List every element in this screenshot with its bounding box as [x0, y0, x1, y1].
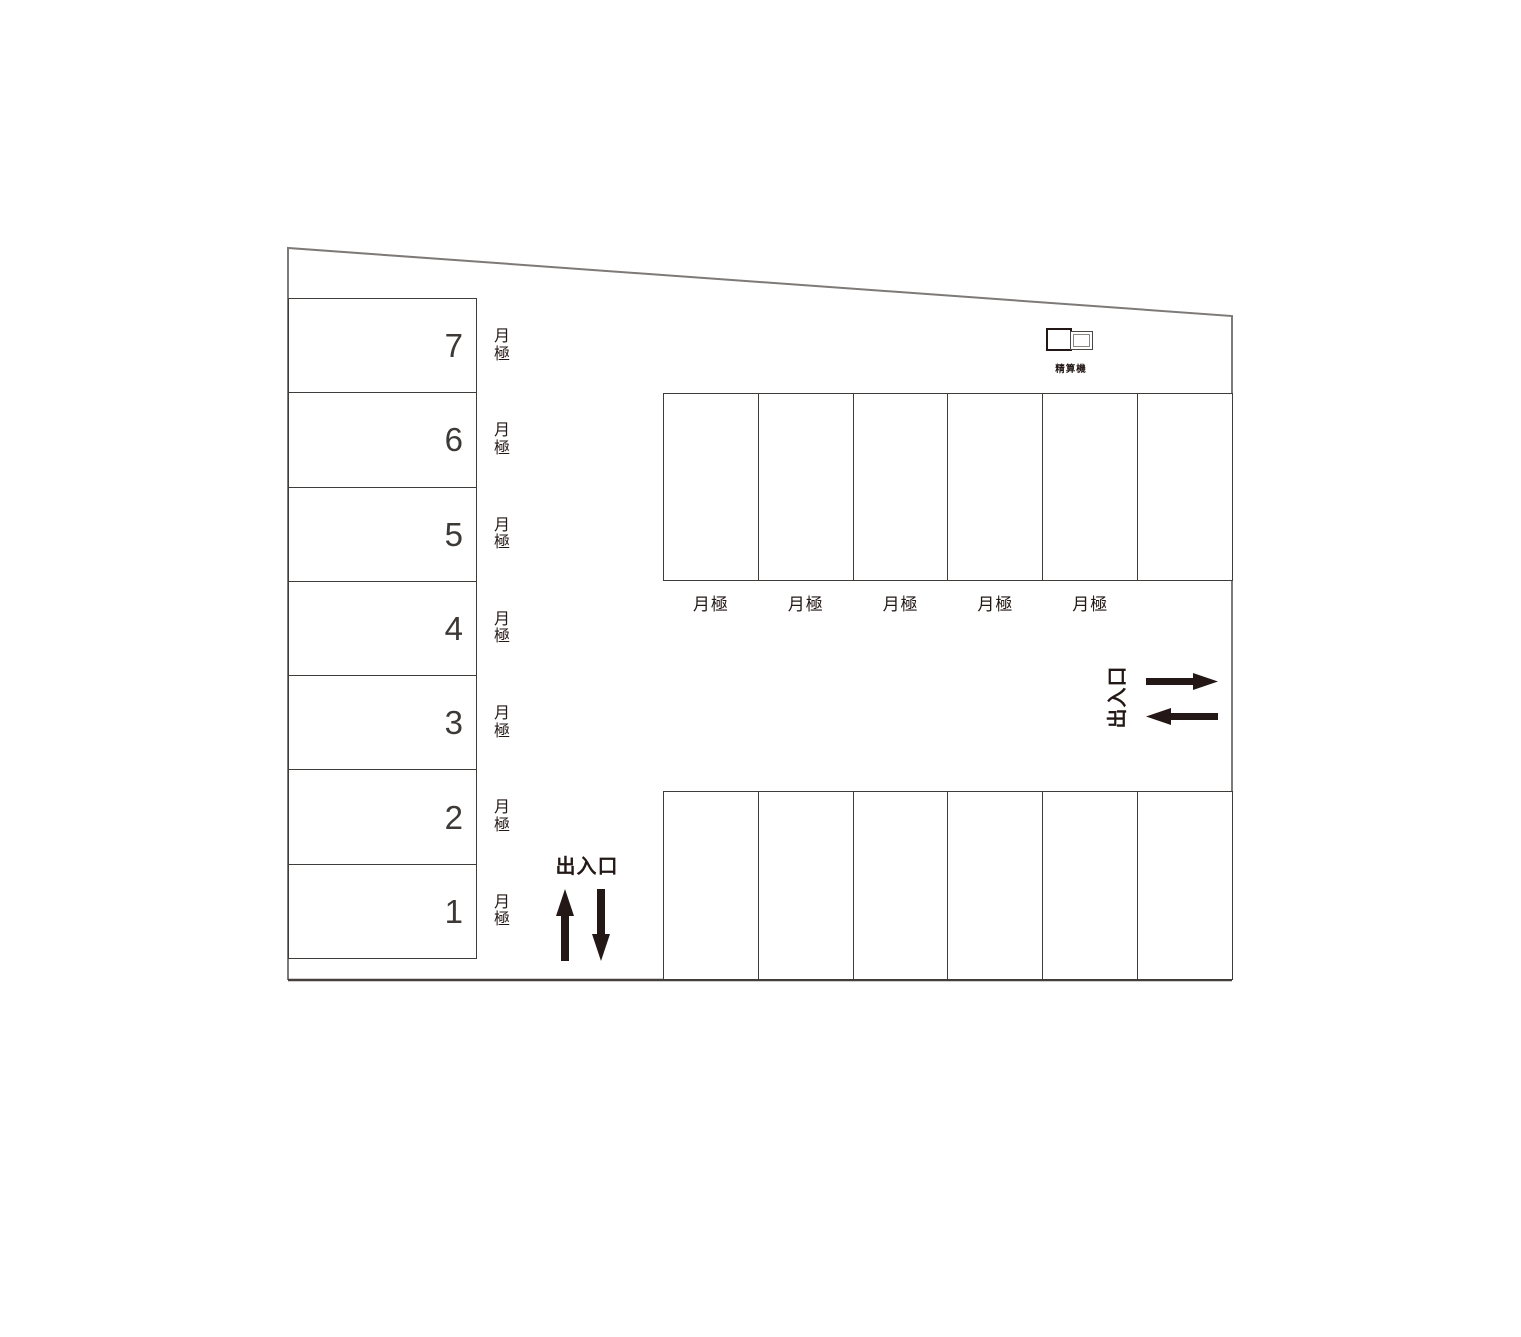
stall-number: 6 — [445, 423, 463, 456]
down-arrow-icon — [592, 889, 610, 961]
top-stall-2: 月極 — [758, 393, 854, 581]
left-stall-row: 7 月極 — [288, 298, 528, 393]
monthly-label: 月極 — [493, 705, 511, 740]
monthly-label: 月極 — [759, 590, 853, 615]
entrance-exit-label-bottom: 出入口 — [546, 850, 628, 879]
parking-stall-5: 5 — [288, 487, 477, 582]
up-arrow-icon — [556, 889, 574, 961]
left-stall-column: 7 月極 6 月極 5 月極 4 月極 3 月極 2 月極 1 月極 — [288, 298, 528, 959]
monthly-label: 月極 — [493, 422, 511, 457]
monthly-label: 月極 — [948, 590, 1042, 615]
top-stall-1: 月極 — [663, 393, 759, 581]
bottom-stall-3 — [853, 791, 949, 980]
left-stall-row: 3 月極 — [288, 675, 528, 770]
entrance-exit-label-right: 出入口 — [1107, 657, 1129, 737]
payment-machine: 精算機 — [1045, 327, 1097, 373]
top-stall-3: 月極 — [853, 393, 949, 581]
parking-lot-diagram: 7 月極 6 月極 5 月極 4 月極 3 月極 2 月極 1 月極 月極 月 — [0, 0, 1521, 1337]
bottom-stall-row — [663, 791, 1233, 980]
stall-number: 3 — [445, 706, 463, 739]
stall-number: 1 — [445, 895, 463, 928]
monthly-label: 月極 — [493, 799, 511, 834]
stall-number: 5 — [445, 518, 463, 551]
left-stall-row: 2 月極 — [288, 769, 528, 864]
top-stall-4: 月極 — [947, 393, 1043, 581]
parking-stall-7: 7 — [288, 298, 477, 393]
payment-machine-label: 精算機 — [1031, 361, 1111, 375]
left-stall-row: 5 月極 — [288, 487, 528, 582]
stall-number: 7 — [445, 329, 463, 362]
monthly-label: 月極 — [493, 517, 511, 552]
stall-number: 4 — [445, 612, 463, 645]
payment-machine-icon — [1073, 334, 1090, 347]
top-stall-6 — [1137, 393, 1233, 581]
site-boundary — [0, 0, 1521, 1337]
parking-stall-2: 2 — [288, 769, 477, 864]
bottom-stall-1 — [663, 791, 759, 980]
payment-machine-icon — [1046, 328, 1072, 351]
stall-number: 2 — [445, 801, 463, 834]
left-arrow-icon — [1146, 708, 1218, 725]
monthly-label: 月極 — [664, 590, 758, 615]
bottom-stall-4 — [947, 791, 1043, 980]
right-arrow-icon — [1146, 673, 1218, 690]
bottom-stall-2 — [758, 791, 854, 980]
parking-stall-4: 4 — [288, 581, 477, 676]
bottom-stall-5 — [1042, 791, 1138, 980]
top-stall-5: 月極 — [1042, 393, 1138, 581]
left-stall-row: 1 月極 — [288, 864, 528, 959]
top-stall-row: 月極 月極 月極 月極 月極 — [663, 393, 1233, 581]
bottom-stall-6 — [1137, 791, 1233, 980]
parking-stall-3: 3 — [288, 675, 477, 770]
left-stall-row: 4 月極 — [288, 581, 528, 676]
monthly-label: 月極 — [854, 590, 948, 615]
monthly-label: 月極 — [493, 611, 511, 646]
parking-stall-1: 1 — [288, 864, 477, 959]
payment-machine-icon — [1070, 331, 1093, 350]
monthly-label: 月極 — [1043, 590, 1137, 615]
parking-stall-6: 6 — [288, 392, 477, 487]
monthly-label: 月極 — [493, 328, 511, 363]
monthly-label: 月極 — [493, 894, 511, 929]
left-stall-row: 6 月極 — [288, 392, 528, 487]
